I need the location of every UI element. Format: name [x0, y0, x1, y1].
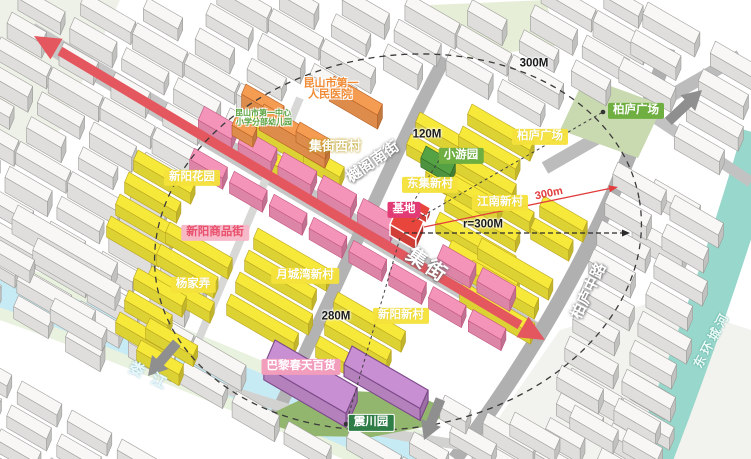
label-meas-north-300m: 300M	[520, 57, 549, 70]
label-yuechengwan-xincun: 月城湾新村	[271, 268, 339, 284]
label-road-ji-jie: 集街	[402, 244, 453, 289]
label-meas-radius: r=300M	[463, 218, 503, 231]
label-xinyang-shangpinjie: 新阳商品街	[181, 225, 249, 241]
label-zhenchuan-yuan: 震川园	[348, 414, 395, 432]
site-context-map: 昆山市第一 人民医院 昆山市第一中心 小学分部幼儿园 集街西村 新阳花园 新阳商…	[0, 0, 751, 459]
label-road-bolu-zhonglu: 柏庐中路	[568, 260, 610, 322]
label-dongji-xincun: 东集新村	[402, 177, 458, 193]
label-meas-northeast-120m: 120M	[413, 128, 442, 141]
label-xiao-you-yuan: 小游园	[439, 148, 484, 164]
label-hospital-line2: 人民医院	[308, 89, 352, 102]
label-site: 基地	[388, 202, 421, 218]
label-meas-east-300m: 300m	[534, 185, 564, 203]
labels-layer: 昆山市第一 人民医院 昆山市第一中心 小学分部幼儿园 集街西村 新阳花园 新阳商…	[0, 0, 751, 459]
label-kindergarten-line2: 小学分部幼儿园	[236, 117, 292, 126]
label-bolu-guangchang-blocks: 柏庐广场	[512, 129, 568, 145]
label-bali-chuntian-baihuo: 巴黎春天百货	[262, 359, 341, 375]
label-xinyang-xincun: 新阳新村	[373, 308, 429, 324]
label-bolu-guangchang-park: 柏庐广场	[608, 103, 664, 119]
label-jijie-xicun: 集街西村	[309, 140, 361, 155]
label-xinyang-huayuan: 新阳花园	[164, 170, 220, 186]
label-jiangnan-xincun: 江南新村	[472, 195, 528, 211]
label-canal-donghuanchenghe: 东环城河	[691, 309, 733, 371]
label-river-loujiang: 娄江	[126, 359, 178, 397]
label-kindergarten-line1: 昆山市第一中心	[235, 108, 291, 117]
label-yangjialong: 杨家弄	[171, 277, 216, 293]
label-meas-south-280m: 280M	[322, 310, 351, 323]
